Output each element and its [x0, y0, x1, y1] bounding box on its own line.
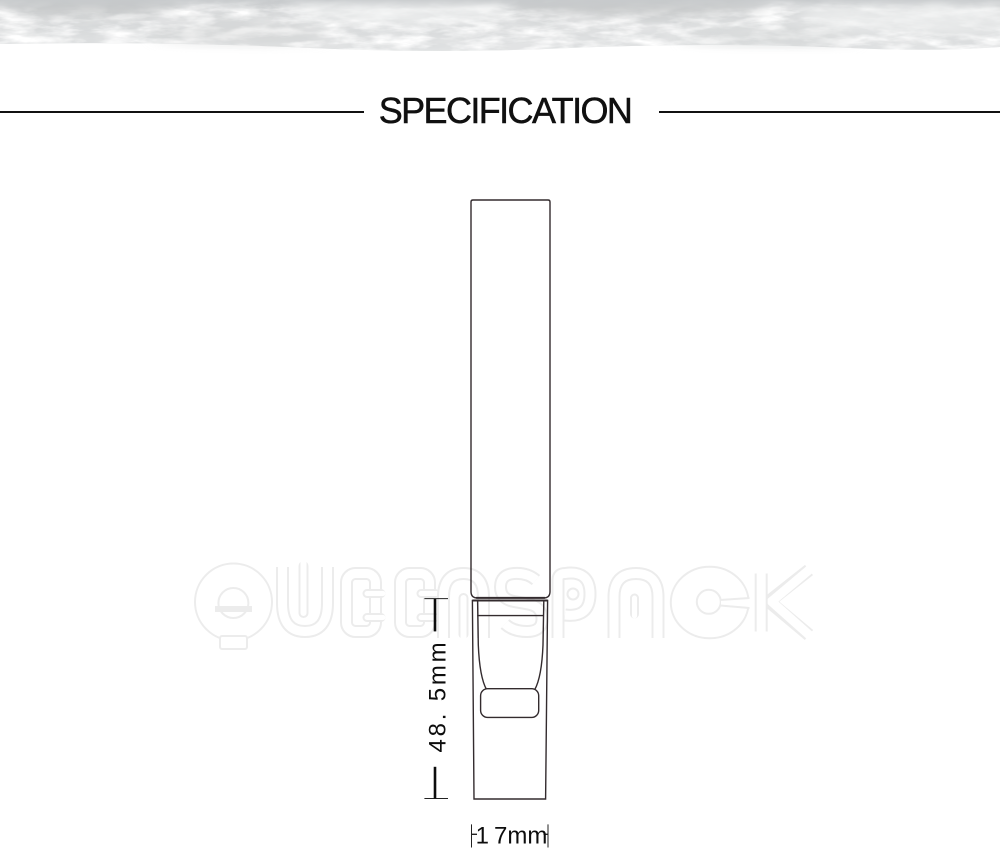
- svg-text:48. 5mm: 48. 5mm: [425, 640, 452, 753]
- svg-text:17mm: 17mm: [476, 823, 548, 850]
